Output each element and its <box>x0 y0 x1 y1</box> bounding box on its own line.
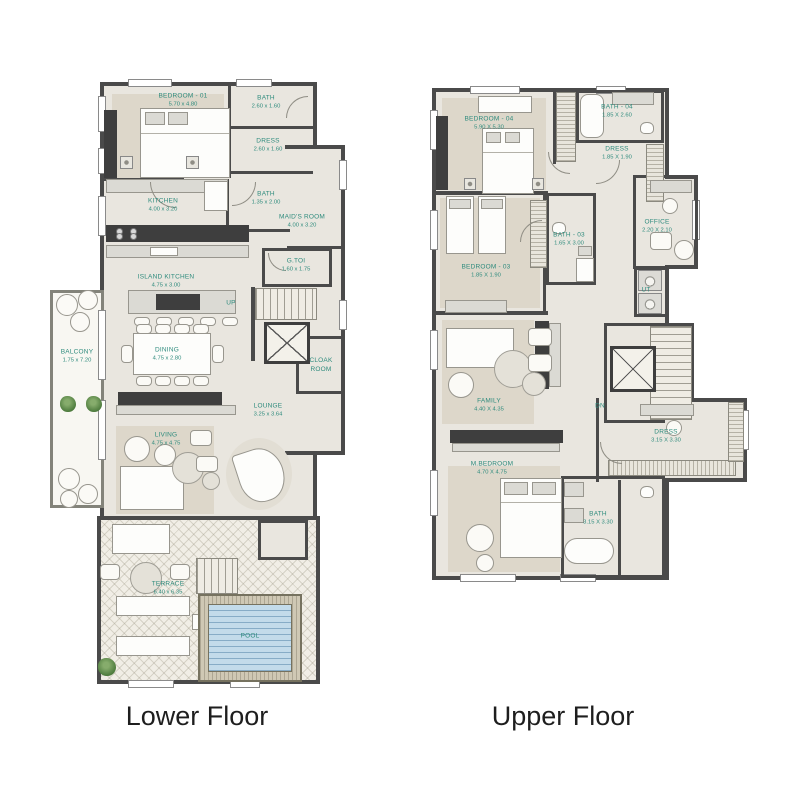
room-name: DINING <box>153 347 182 356</box>
room-name: OFFICE <box>642 219 672 228</box>
blanket-line <box>483 152 533 153</box>
tv-console <box>452 443 560 452</box>
window <box>470 86 520 94</box>
room-label-bath-master: BATH 3.15 X 3.30 <box>583 511 613 528</box>
armchair <box>528 354 552 372</box>
dressing-table <box>640 404 694 416</box>
room-label-island-kitchen: ISLAND KITCHEN 4.75 x 3.00 <box>138 274 195 291</box>
pillow <box>481 199 503 209</box>
room-name: FAMILY <box>474 398 504 407</box>
room-name: DRESS <box>254 138 283 147</box>
window <box>430 210 438 250</box>
room-name: BEDROOM - 03 <box>462 264 511 273</box>
stairs-up-label: UP <box>226 300 235 309</box>
room-label-living: LIVING 4.75 x 4.75 <box>152 432 181 449</box>
armchair <box>448 372 474 398</box>
sink-icon <box>564 508 584 523</box>
wardrobe-rack <box>608 460 736 476</box>
room-dims: 4.75 x 2.80 <box>153 355 182 363</box>
room-dims: 1.65 X 3.00 <box>553 240 585 248</box>
room-name: CLOAK ROOM <box>299 357 343 375</box>
room-label-utility: UT <box>641 287 650 296</box>
shower <box>576 258 594 282</box>
room-label-bedroom03: BEDROOM - 03 1.85 X 1.90 <box>462 264 511 281</box>
room-label-dress-master: DRESS 3.15 X 3.30 <box>651 429 681 446</box>
room-name: ISLAND KITCHEN <box>138 274 195 283</box>
bathtub-icon <box>564 538 614 564</box>
room-name: BATH <box>583 511 613 520</box>
room-name: G.TOI <box>282 258 311 267</box>
room-name: DN <box>595 403 605 412</box>
lower-floor-caption: Lower Floor <box>126 701 269 732</box>
room-dims: 4.75 x 4.75 <box>152 440 181 448</box>
desk <box>650 180 692 193</box>
room-name: TERRACE <box>152 581 184 590</box>
room-dims: 3.25 x 3.64 <box>254 411 283 419</box>
room-dims: 4.00 x 3.20 <box>148 206 178 214</box>
room-label-dress: DRESS 2.60 x 1.60 <box>254 138 283 155</box>
side-table <box>522 372 546 396</box>
room-name: BATH <box>252 191 281 200</box>
room-name: BATH <box>252 95 281 104</box>
armchair <box>528 328 552 346</box>
office-chair <box>662 198 678 214</box>
room-dims: 2.60 x 1.60 <box>252 103 281 111</box>
room-dims: 4.70 X 4.75 <box>471 469 514 477</box>
wardrobe <box>436 116 448 190</box>
room-name: BEDROOM - 01 <box>159 93 208 102</box>
room-dims: 1.85 X 1.90 <box>462 272 511 280</box>
room-dims: 1.85 X 2.60 <box>601 112 633 120</box>
room-name: UP <box>226 300 235 309</box>
room-dims: 3.15 X 3.30 <box>583 519 613 527</box>
window <box>460 574 516 582</box>
room-name: UT <box>641 287 650 296</box>
speaker-icon <box>532 178 544 190</box>
blanket-line <box>501 502 561 503</box>
room-dims: 2.20 X 2.10 <box>642 227 672 235</box>
room-label-lounge: LOUNGE 3.25 x 3.64 <box>254 403 283 420</box>
sink-icon <box>564 482 584 497</box>
room-dims: 4.00 x 3.20 <box>279 222 325 230</box>
room-label-maids-room: MAID'S ROOM 4.00 x 3.20 <box>279 214 325 231</box>
room-label-balcony: BALCONY 1.75 x 7.20 <box>61 349 93 366</box>
room-label-bath02: BATH 1.35 x 2.00 <box>252 191 281 208</box>
pillow <box>486 132 501 143</box>
room-label-bedroom04: BEDROOM - 04 5.90 X 5.30 <box>465 116 514 133</box>
window <box>430 470 438 516</box>
room-dims: 6.40 x 6.35 <box>152 589 184 597</box>
room-name: M.BEDROOM <box>471 461 514 470</box>
room-dims: 4.75 x 3.00 <box>138 282 195 290</box>
room-label-cloak-room: CLOAK ROOM <box>299 357 343 375</box>
stairs-dn-label: DN <box>595 403 605 412</box>
room-label-bath03: BATH - 03 1.65 X 3.00 <box>553 232 585 249</box>
speaker-icon <box>464 178 476 190</box>
room-label-family: FAMILY 4.40 X 4.35 <box>474 398 504 415</box>
washer-icon <box>638 293 662 314</box>
tv-unit <box>450 430 563 443</box>
room-label-office: OFFICE 2.20 X 2.10 <box>642 219 672 236</box>
room-label-bedroom01: BEDROOM - 01 5.70 x 4.80 <box>159 93 208 110</box>
room-label-pool: POOL <box>241 633 260 642</box>
pillow <box>532 482 556 495</box>
room-name: BATH - 03 <box>553 232 585 241</box>
room-name: LIVING <box>152 432 181 441</box>
elevator-icon <box>610 346 656 392</box>
room-dims: 5.70 x 4.80 <box>159 101 208 109</box>
room-name: BATH - 04 <box>601 104 633 113</box>
room-label-kitchen: KITCHEN 4.00 x 3.20 <box>148 198 178 215</box>
room-name: BEDROOM - 04 <box>465 116 514 125</box>
room-name: LOUNGE <box>254 403 283 412</box>
wardrobe-rack <box>646 144 664 202</box>
room-name: POOL <box>241 633 260 642</box>
room-name: MAID'S ROOM <box>279 214 325 223</box>
upper-floor-caption: Upper Floor <box>492 701 635 732</box>
room-label-g-toi: G.TOI 1.60 x 1.75 <box>282 258 311 275</box>
pillow <box>505 132 520 143</box>
room-dims: 2.60 x 1.60 <box>254 146 283 154</box>
room-label-bath04: BATH - 04 1.85 X 2.60 <box>601 104 633 121</box>
room-dims: 5.90 X 5.30 <box>465 124 514 132</box>
pillow <box>449 199 471 209</box>
pillow <box>504 482 528 495</box>
room-dims: 1.35 x 2.00 <box>252 199 281 207</box>
wardrobe-rack <box>728 402 744 462</box>
room-dims: 1.60 x 1.75 <box>282 266 311 274</box>
room-dims: 1.75 x 7.20 <box>61 357 93 365</box>
room-label-bath01: BATH 2.60 x 1.60 <box>252 95 281 112</box>
desk <box>445 300 507 313</box>
room-label-dining: DINING 4.75 x 2.80 <box>153 347 182 364</box>
wall <box>618 480 621 576</box>
room-label-master-bedroom: M.BEDROOM 4.70 X 4.75 <box>471 461 514 478</box>
armchair <box>674 240 694 260</box>
room-label-terrace: TERRACE 6.40 x 6.35 <box>152 581 184 598</box>
upper-floor-plan: BEDROOM - 04 5.90 X 5.30 BATH - 04 1.85 … <box>0 0 800 800</box>
room-name: DRESS <box>602 146 632 155</box>
window <box>430 330 438 370</box>
pouf <box>476 554 494 572</box>
room-dims: 4.40 X 4.35 <box>474 406 504 414</box>
toilet-icon <box>640 122 654 134</box>
room-name: KITCHEN <box>148 198 178 207</box>
toilet-icon <box>640 486 654 498</box>
room-name: DRESS <box>651 429 681 438</box>
dresser <box>478 96 532 113</box>
room-dims: 1.85 X 1.90 <box>602 154 632 162</box>
armchair <box>466 524 494 552</box>
room-dims: 3.15 X 3.30 <box>651 437 681 445</box>
room-label-dress04: DRESS 1.85 X 1.90 <box>602 146 632 163</box>
room-name: BALCONY <box>61 349 93 358</box>
